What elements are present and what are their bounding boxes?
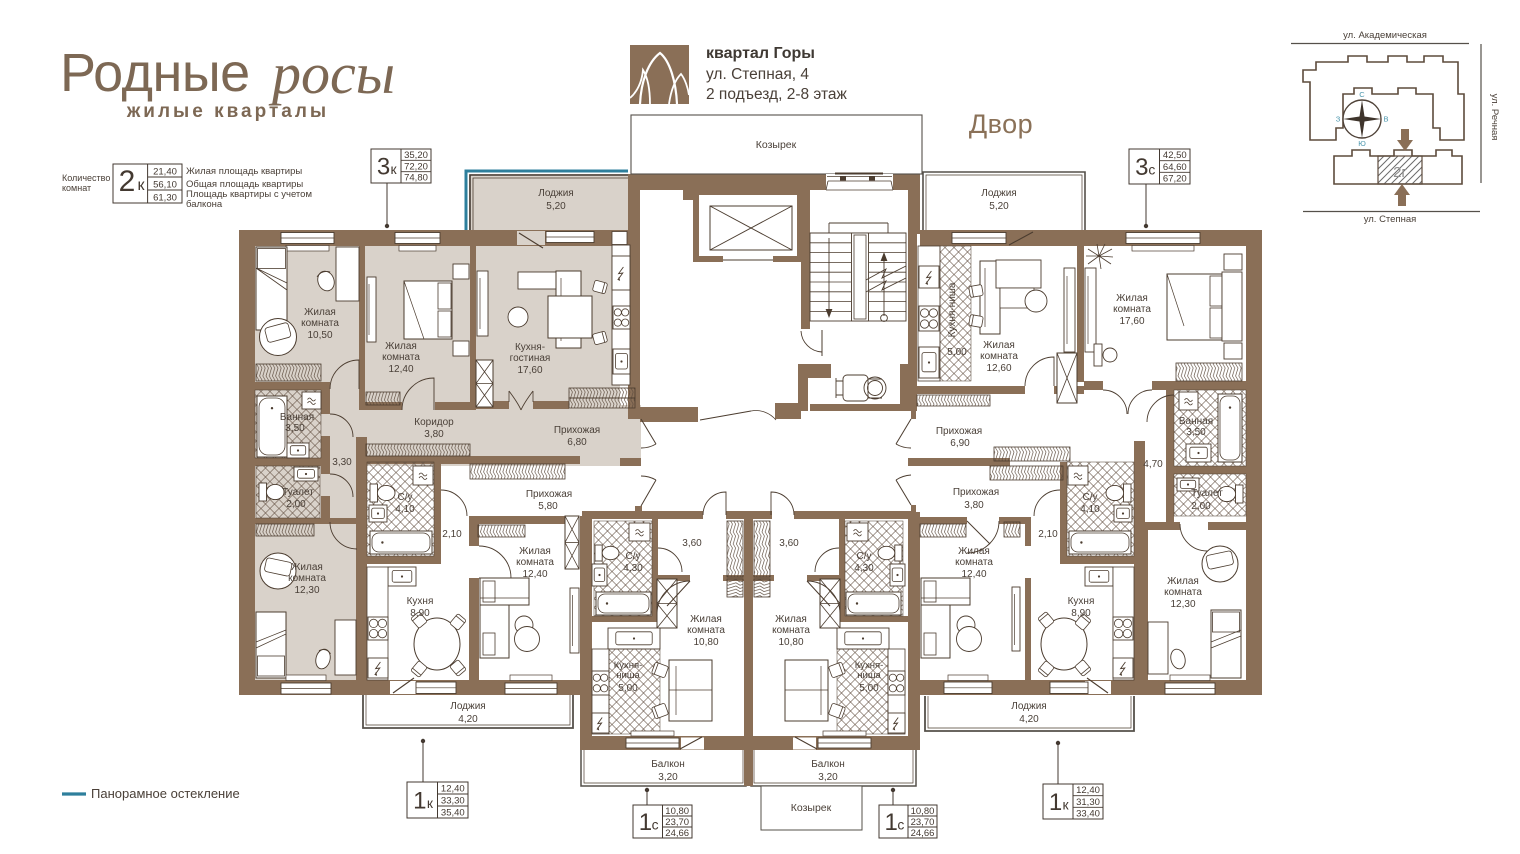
svg-text:к: к <box>427 795 434 811</box>
svg-text:Коридор: Коридор <box>414 417 454 428</box>
svg-text:33,30: 33,30 <box>441 795 465 806</box>
svg-text:ул. Академическая: ул. Академическая <box>1343 30 1427 41</box>
svg-text:комната: комната <box>288 573 326 584</box>
svg-text:с: с <box>897 816 904 832</box>
svg-text:5,20: 5,20 <box>989 201 1009 212</box>
svg-text:Прихожая: Прихожая <box>526 489 572 500</box>
svg-text:12,40: 12,40 <box>441 783 465 794</box>
svg-text:Ванная: Ванная <box>1179 416 1213 427</box>
svg-text:Лоджия: Лоджия <box>981 188 1016 199</box>
svg-text:56,10: 56,10 <box>153 180 177 191</box>
svg-text:3,60: 3,60 <box>779 538 799 549</box>
svg-text:комната: комната <box>1164 587 1202 598</box>
svg-text:к: к <box>390 161 397 177</box>
svg-text:Жилая: Жилая <box>983 340 1015 351</box>
svg-text:с: с <box>1148 161 1155 177</box>
svg-text:23,70: 23,70 <box>665 817 689 828</box>
svg-text:Жилая: Жилая <box>385 341 417 352</box>
svg-text:3,30: 3,30 <box>332 457 352 468</box>
svg-text:24,66: 24,66 <box>665 828 689 839</box>
svg-text:12,30: 12,30 <box>1170 599 1195 610</box>
svg-text:Жилая площадь квартиры: Жилая площадь квартиры <box>186 166 302 177</box>
svg-text:1: 1 <box>885 809 898 836</box>
svg-text:Жилая: Жилая <box>1167 576 1199 587</box>
svg-text:2,10: 2,10 <box>442 529 462 540</box>
svg-text:3,80: 3,80 <box>424 429 444 440</box>
svg-text:23,70: 23,70 <box>911 817 935 828</box>
svg-text:С: С <box>1359 90 1365 99</box>
svg-text:комната: комната <box>1113 304 1151 315</box>
svg-text:Прихожая: Прихожая <box>936 426 982 437</box>
svg-text:10,50: 10,50 <box>307 330 332 341</box>
svg-text:Лоджия: Лоджия <box>1011 701 1046 712</box>
svg-text:1: 1 <box>413 788 426 815</box>
svg-text:3,50: 3,50 <box>285 423 305 434</box>
svg-text:Жилая: Жилая <box>958 546 990 557</box>
svg-text:Козырек: Козырек <box>756 139 797 151</box>
svg-text:балкона: балкона <box>186 199 223 210</box>
svg-text:12,40: 12,40 <box>961 569 986 580</box>
svg-text:комната: комната <box>687 625 725 636</box>
svg-text:Кухня: Кухня <box>1068 596 1095 607</box>
svg-text:12,40: 12,40 <box>522 569 547 580</box>
svg-text:12,30: 12,30 <box>294 585 319 596</box>
svg-text:4,10: 4,10 <box>395 504 415 515</box>
svg-text:42,50: 42,50 <box>1163 150 1187 161</box>
svg-text:5,80: 5,80 <box>538 501 558 512</box>
svg-text:24,66: 24,66 <box>911 828 935 839</box>
svg-text:В: В <box>1383 115 1388 124</box>
svg-text:Жилая: Жилая <box>304 307 336 318</box>
svg-text:комната: комната <box>955 557 993 568</box>
svg-text:5,00: 5,00 <box>859 683 879 694</box>
svg-text:4,30: 4,30 <box>854 563 874 574</box>
svg-text:3: 3 <box>1135 154 1148 181</box>
svg-text:ул. Степная: ул. Степная <box>1364 214 1417 225</box>
svg-text:росы: росы <box>268 41 395 106</box>
svg-text:3,80: 3,80 <box>964 500 984 511</box>
svg-text:Козырек: Козырек <box>791 802 832 814</box>
svg-text:С/у: С/у <box>1083 492 1098 503</box>
svg-text:Жилая: Жилая <box>775 614 807 625</box>
svg-text:4,30: 4,30 <box>623 563 643 574</box>
svg-text:31,30: 31,30 <box>1076 797 1100 808</box>
svg-text:Ванная: Ванная <box>280 412 314 423</box>
svg-text:Прихожая: Прихожая <box>953 487 999 498</box>
svg-text:Ю: Ю <box>1358 139 1366 148</box>
svg-text:2 подъезд, 2-8 этаж: 2 подъезд, 2-8 этаж <box>706 86 848 103</box>
svg-text:ниша: ниша <box>616 670 640 681</box>
svg-text:комната: комната <box>382 352 420 363</box>
svg-text:3,20: 3,20 <box>658 772 678 783</box>
svg-text:6,80: 6,80 <box>567 437 587 448</box>
svg-text:ул. Речная: ул. Речная <box>1489 94 1500 141</box>
svg-text:17,60: 17,60 <box>517 365 542 376</box>
svg-text:с: с <box>652 816 659 832</box>
svg-text:комната: комната <box>516 557 554 568</box>
svg-text:Лоджия: Лоджия <box>450 701 485 712</box>
svg-text:Родные: Родные <box>60 43 250 103</box>
svg-text:17,60: 17,60 <box>1119 316 1144 327</box>
svg-text:4,10: 4,10 <box>1080 504 1100 515</box>
svg-text:Жилая: Жилая <box>1116 293 1148 304</box>
svg-text:4,20: 4,20 <box>1019 714 1039 725</box>
svg-text:С/у: С/у <box>626 551 641 562</box>
svg-text:74,80: 74,80 <box>404 173 428 184</box>
svg-text:3,50: 3,50 <box>1186 427 1206 438</box>
svg-text:12,60: 12,60 <box>986 363 1011 374</box>
svg-text:3,20: 3,20 <box>818 772 838 783</box>
svg-text:гостиная: гостиная <box>510 353 551 364</box>
svg-text:21,40: 21,40 <box>153 167 177 178</box>
svg-text:2,10: 2,10 <box>1038 529 1058 540</box>
svg-text:комнат: комнат <box>62 183 91 193</box>
svg-text:33,40: 33,40 <box>1076 809 1100 820</box>
svg-text:квартал Горы: квартал Горы <box>706 45 815 62</box>
svg-text:5,00: 5,00 <box>618 683 638 694</box>
svg-text:Жилая: Жилая <box>291 562 323 573</box>
svg-text:2,00: 2,00 <box>1191 501 1211 512</box>
svg-text:10,80: 10,80 <box>778 637 803 648</box>
svg-text:комната: комната <box>301 318 339 329</box>
svg-text:Туалет: Туалет <box>1191 488 1223 499</box>
svg-text:Панорамное остекление: Панорамное остекление <box>91 786 240 801</box>
svg-text:Жилая: Жилая <box>519 546 551 557</box>
svg-text:Кухня-ниша: Кухня-ниша <box>947 282 958 337</box>
svg-text:5,20: 5,20 <box>546 201 566 212</box>
svg-text:1: 1 <box>1049 789 1062 816</box>
svg-text:Лоджия: Лоджия <box>538 188 573 199</box>
svg-text:6,90: 6,90 <box>950 438 970 449</box>
svg-text:З: З <box>1336 115 1341 124</box>
svg-text:8,90: 8,90 <box>410 608 430 619</box>
svg-text:к: к <box>1062 796 1069 812</box>
svg-text:ул. Степная, 4: ул. Степная, 4 <box>706 66 809 83</box>
svg-text:64,60: 64,60 <box>1163 162 1187 173</box>
svg-text:С/у: С/у <box>398 492 413 503</box>
svg-text:Количество: Количество <box>62 173 110 183</box>
svg-text:Туалет: Туалет <box>282 487 314 498</box>
svg-text:Прихожая: Прихожая <box>554 425 600 436</box>
svg-text:Двор: Двор <box>969 109 1033 139</box>
svg-text:10,80: 10,80 <box>911 806 935 817</box>
svg-text:2г: 2г <box>1393 164 1407 181</box>
svg-text:2,00: 2,00 <box>286 499 306 510</box>
svg-text:4,70: 4,70 <box>1143 459 1163 470</box>
svg-text:5,00: 5,00 <box>947 347 967 358</box>
svg-text:С/у: С/у <box>857 551 872 562</box>
svg-text:Кухня-: Кухня- <box>515 342 545 353</box>
svg-text:12,40: 12,40 <box>1076 785 1100 796</box>
svg-text:35,20: 35,20 <box>404 150 428 161</box>
svg-text:Балкон: Балкон <box>811 759 845 770</box>
svg-text:8,90: 8,90 <box>1071 608 1091 619</box>
svg-text:жилые кварталы: жилые кварталы <box>126 101 329 122</box>
svg-text:67,20: 67,20 <box>1163 174 1187 185</box>
svg-text:10,80: 10,80 <box>693 637 718 648</box>
svg-text:комната: комната <box>980 351 1018 362</box>
svg-text:35,40: 35,40 <box>441 807 465 818</box>
svg-text:1: 1 <box>639 809 652 836</box>
svg-text:ниша: ниша <box>857 670 881 681</box>
svg-text:10,80: 10,80 <box>665 806 689 817</box>
svg-text:комната: комната <box>772 625 810 636</box>
svg-text:3,60: 3,60 <box>682 538 702 549</box>
svg-text:61,30: 61,30 <box>153 193 177 204</box>
svg-text:Жилая: Жилая <box>690 614 722 625</box>
svg-text:Балкон: Балкон <box>651 759 685 770</box>
svg-text:72,20: 72,20 <box>404 161 428 172</box>
svg-text:4,20: 4,20 <box>458 714 478 725</box>
svg-text:к: к <box>138 177 146 194</box>
svg-text:12,40: 12,40 <box>388 364 413 375</box>
svg-text:2: 2 <box>119 165 136 198</box>
svg-text:3: 3 <box>377 154 390 181</box>
svg-text:Кухня: Кухня <box>407 596 434 607</box>
